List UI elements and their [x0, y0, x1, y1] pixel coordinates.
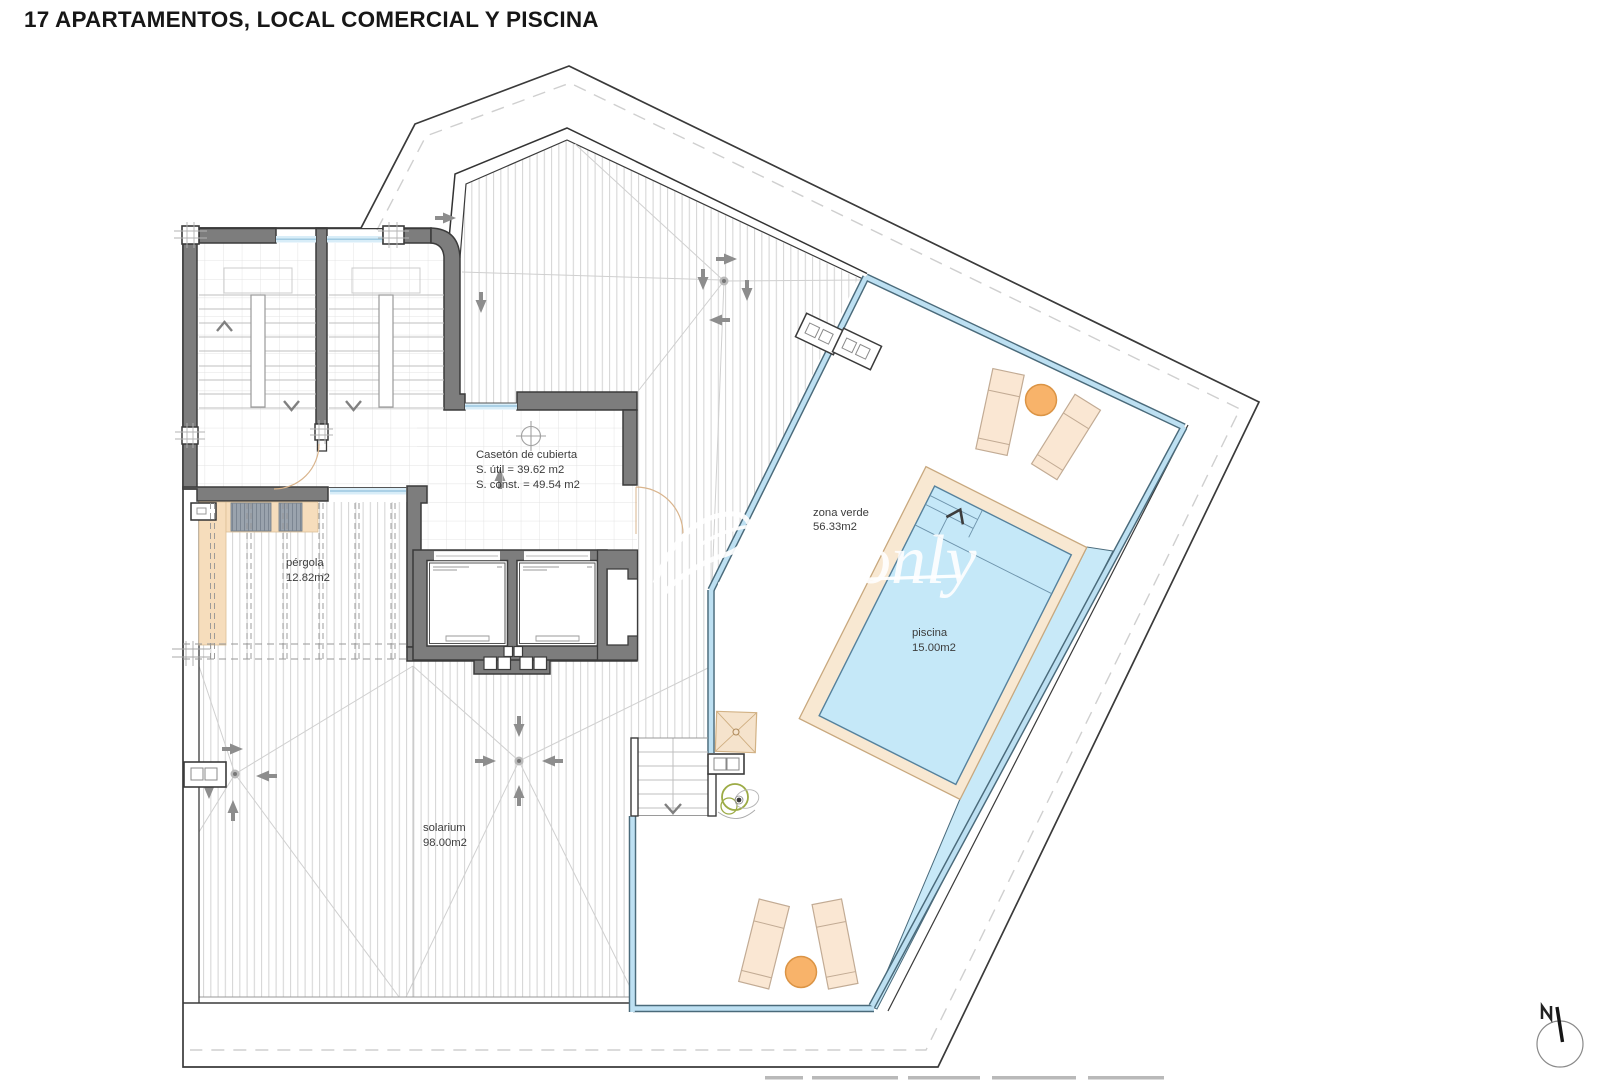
svg-text:56.33m2: 56.33m2: [813, 521, 857, 533]
svg-text:15.00m2: 15.00m2: [912, 642, 956, 654]
svg-text:zona verde: zona verde: [813, 507, 869, 519]
svg-text:pérgola: pérgola: [286, 557, 324, 569]
svg-text:piscina: piscina: [912, 627, 948, 639]
svg-text:S. const. = 49.54 m2: S. const. = 49.54 m2: [476, 479, 580, 491]
svg-text:98.00m2: 98.00m2: [423, 837, 467, 849]
svg-text:only: only: [856, 522, 977, 599]
svg-text:12.82m2: 12.82m2: [286, 572, 330, 584]
svg-text:solarium: solarium: [423, 822, 466, 834]
svg-text:Casetón de cubierta: Casetón de cubierta: [476, 449, 578, 461]
svg-text:S. útil = 39.62 m2: S. útil = 39.62 m2: [476, 464, 564, 476]
